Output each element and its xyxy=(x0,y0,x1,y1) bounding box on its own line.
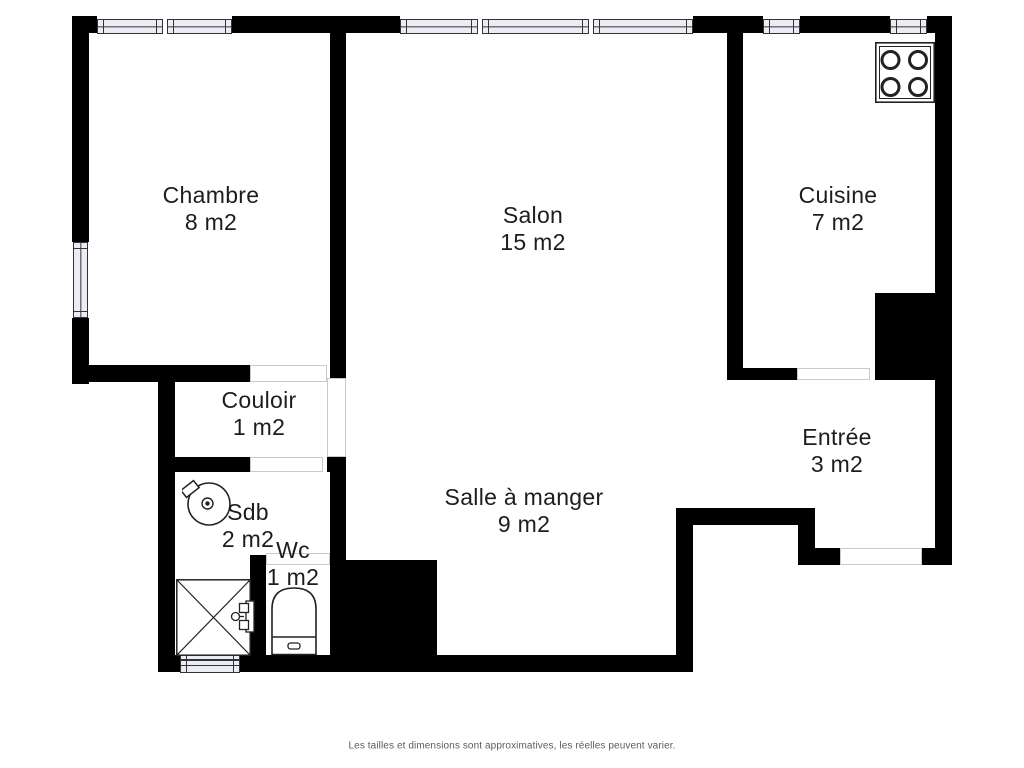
wall-cuisine-bottom xyxy=(727,368,797,380)
room-name: Sdb xyxy=(222,499,274,526)
room-name: Wc xyxy=(267,537,319,564)
chambre-window-left-pane xyxy=(97,19,163,34)
room-label-entree: Entrée 3 m2 xyxy=(802,424,872,478)
room-label-cuisine: Cuisine 7 m2 xyxy=(799,182,878,236)
door-couloir-salle xyxy=(327,378,346,457)
wall-top-4 xyxy=(800,16,890,33)
room-area: 9 m2 xyxy=(445,511,604,538)
salon-window-pane-3 xyxy=(593,19,693,34)
room-area: 15 m2 xyxy=(500,229,565,256)
room-name: Entrée xyxy=(802,424,872,451)
bath-window-bottom xyxy=(180,653,240,673)
salon-window-pane-2 xyxy=(482,19,589,34)
room-label-salon: Salon 15 m2 xyxy=(500,202,565,256)
wall-bath-bottom-left xyxy=(158,655,182,672)
wall-chambre-salon xyxy=(330,33,346,378)
wall-top-2 xyxy=(232,16,400,33)
disclaimer-text: Les tailles et dimensions sont approxima… xyxy=(348,741,675,752)
door-entrance xyxy=(840,548,922,565)
wall-entree-nub xyxy=(815,548,840,565)
wall-entree-right-piece xyxy=(922,548,952,565)
room-area: 3 m2 xyxy=(802,451,872,478)
wall-cuisine-left xyxy=(727,33,743,380)
room-area: 7 m2 xyxy=(799,209,878,236)
wall-salle-bottom xyxy=(332,655,693,672)
wall-bath-bottom-right xyxy=(238,655,342,672)
room-label-salle-a-manger: Salle à manger 9 m2 xyxy=(445,484,604,538)
room-label-couloir: Couloir 1 m2 xyxy=(222,387,297,441)
wall-left-lower xyxy=(158,382,175,672)
room-area: 1 m2 xyxy=(267,564,319,591)
room-name: Chambre xyxy=(163,182,260,209)
wall-cuisine-block xyxy=(875,293,952,380)
door-chambre-couloir xyxy=(250,365,327,382)
door-cuisine-entree xyxy=(797,368,870,380)
door-couloir-sdb xyxy=(250,457,323,472)
room-name: Cuisine xyxy=(799,182,878,209)
room-name: Couloir xyxy=(222,387,297,414)
chambre-window-right-pane xyxy=(167,19,232,34)
room-label-chambre: Chambre 8 m2 xyxy=(163,182,260,236)
wall-chambre-bottom xyxy=(72,365,250,382)
room-label-wc: Wc 1 m2 xyxy=(267,537,319,591)
room-name: Salon xyxy=(500,202,565,229)
door-leaf-icon xyxy=(230,599,258,635)
wall-left-upper xyxy=(72,16,89,242)
wall-salle-right xyxy=(676,508,693,672)
cuisine-window-2 xyxy=(890,19,927,34)
salon-window-pane-1 xyxy=(400,19,478,34)
room-area: 1 m2 xyxy=(222,414,297,441)
wall-top-3 xyxy=(693,16,763,33)
wall-entree-step xyxy=(798,508,815,565)
chambre-window-side xyxy=(73,242,88,318)
stove-icon xyxy=(875,42,935,103)
cuisine-window-1 xyxy=(763,19,800,34)
toilet-icon xyxy=(271,587,318,656)
wall-entree-bottom-left xyxy=(676,508,815,525)
wall-right xyxy=(935,16,952,548)
floor-plan: Chambre 8 m2 Salon 15 m2 Cuisine 7 m2 Co… xyxy=(0,0,1024,768)
wall-couloir-bottom xyxy=(175,457,250,472)
room-name: Salle à manger xyxy=(445,484,604,511)
room-area: 8 m2 xyxy=(163,209,260,236)
